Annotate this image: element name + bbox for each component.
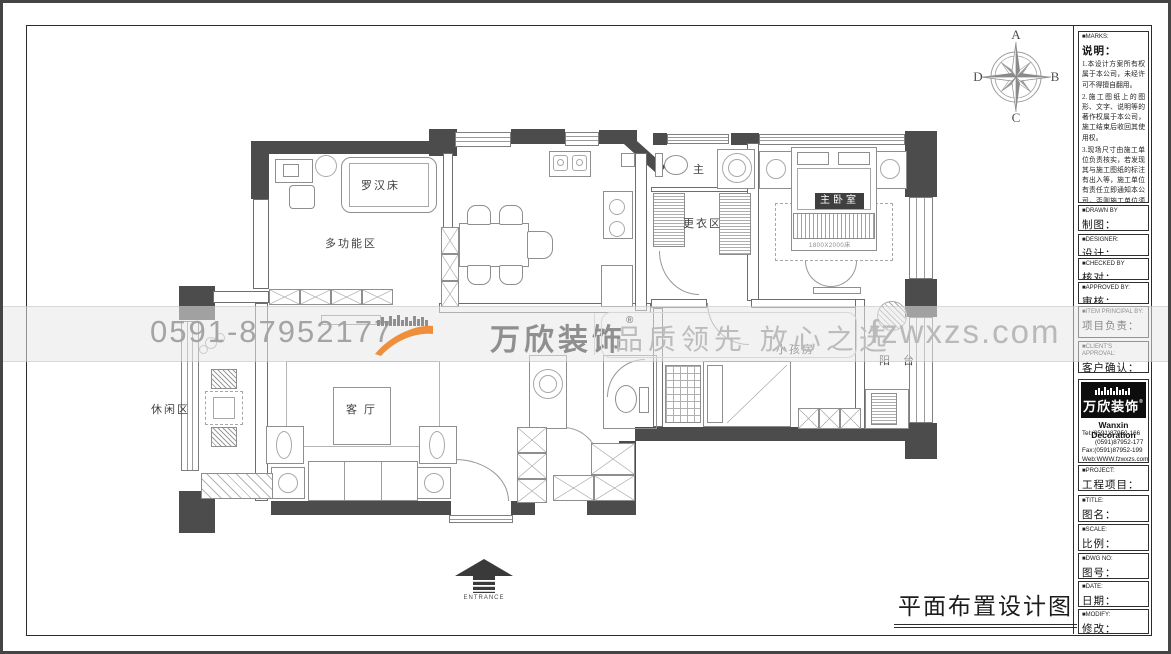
bath-cabinet xyxy=(517,453,547,479)
watermark-separator xyxy=(594,313,595,355)
storage-cabinet xyxy=(441,227,459,254)
watermark-banner: 0591-87952177 万欣装饰® 品质领先 放心之选 fzwxzs.com xyxy=(3,306,1171,362)
label-master-bedroom: 主卧室 xyxy=(815,193,864,209)
storage-cabinet xyxy=(300,289,331,305)
wall-segment xyxy=(587,501,636,515)
kids-wardrobe xyxy=(665,365,701,423)
door-arc xyxy=(659,251,699,295)
wall-segment xyxy=(511,129,565,144)
storage-cabinet xyxy=(441,254,459,281)
bath-cabinet xyxy=(517,479,547,503)
dining-chair xyxy=(527,231,553,259)
label-living: 客 厅 xyxy=(346,404,377,416)
leisure-table-inner xyxy=(213,397,235,419)
armchair-cushion xyxy=(276,431,292,459)
shoe-cabinet xyxy=(594,475,635,501)
door-arc xyxy=(805,261,857,287)
wardrobe xyxy=(653,193,685,247)
toilet-bowl xyxy=(615,385,637,413)
drawing-title: 平面布置设计图 xyxy=(894,587,1077,628)
ceiling-fan-symbol xyxy=(315,155,337,177)
wall-segment xyxy=(905,131,937,197)
wall-segment xyxy=(511,501,535,515)
kids-cabinet xyxy=(840,408,861,429)
washbasin-inner xyxy=(728,159,746,177)
wardrobe xyxy=(719,193,751,255)
sink-drain xyxy=(576,159,583,166)
kids-bed-pillow xyxy=(707,365,723,423)
watermark-website: fzwxzs.com xyxy=(870,313,1061,351)
label-luohan-bed: 罗汉床 xyxy=(361,180,400,192)
cabinet xyxy=(591,443,635,475)
window xyxy=(455,132,511,147)
dining-chair xyxy=(499,205,523,225)
nightstand-lamp xyxy=(880,159,900,179)
window xyxy=(909,197,933,279)
entrance-arrow-icon xyxy=(455,559,513,593)
side-table-top xyxy=(424,473,444,493)
balcony-cabinet-louver xyxy=(871,393,897,425)
sink-drain xyxy=(557,159,564,166)
dining-table xyxy=(459,223,529,267)
bed-bench xyxy=(813,287,861,294)
interior-wall xyxy=(443,153,453,229)
bed-runner xyxy=(793,213,875,239)
window xyxy=(667,134,729,144)
label-multi-function: 多功能区 xyxy=(325,238,377,250)
entrance-step xyxy=(449,515,513,523)
stove-burner xyxy=(609,221,625,237)
storage-cabinet xyxy=(362,289,393,305)
sofa-seat-divider xyxy=(344,462,345,500)
desk-item xyxy=(283,164,299,177)
low-cabinet xyxy=(201,473,273,499)
leisure-chair xyxy=(211,369,237,389)
label-entrance: ENTRANCE xyxy=(455,595,513,601)
kitchen-cabinet xyxy=(601,265,633,307)
leisure-chair xyxy=(211,427,237,447)
watermark-slogan: 品质领先 放心之选 xyxy=(615,318,892,358)
watermark-phone: 0591-87952177 xyxy=(150,314,393,350)
wall-segment xyxy=(271,501,451,515)
drawing-sheet: A B C D xyxy=(0,0,1171,654)
window xyxy=(759,134,905,145)
side-table-top xyxy=(278,473,298,493)
kids-bed-blanket-fold xyxy=(727,365,787,423)
nightstand-lamp xyxy=(766,159,786,179)
chair xyxy=(289,185,315,209)
kids-cabinet xyxy=(819,408,840,429)
toilet-tank xyxy=(655,153,663,177)
label-dressing: 更衣区 xyxy=(683,218,722,230)
toilet-bowl xyxy=(664,155,688,175)
dining-chair xyxy=(467,265,491,285)
interior-wall xyxy=(635,153,647,311)
wall-segment xyxy=(635,427,909,441)
sofa xyxy=(308,461,418,501)
storage-cabinet xyxy=(441,281,459,307)
interior-wall xyxy=(213,291,269,303)
wall-segment xyxy=(265,141,431,154)
label-leisure: 休闲区 xyxy=(151,404,190,416)
label-bed-size: 1800X2000床 xyxy=(809,243,851,250)
storage-cabinet xyxy=(269,289,300,305)
dining-chair xyxy=(499,265,523,285)
watermark-logo-icon xyxy=(373,312,485,356)
washbasin-inner xyxy=(539,375,557,393)
wall-segment xyxy=(905,423,937,459)
window xyxy=(565,132,599,146)
shoe-cabinet xyxy=(553,475,594,501)
interior-wall xyxy=(253,199,269,289)
kids-cabinet xyxy=(798,408,819,429)
bed-pillow xyxy=(838,152,870,165)
sofa-seat-divider xyxy=(381,462,382,500)
door-arc xyxy=(455,459,509,501)
wall-segment xyxy=(429,129,457,156)
toilet-tank xyxy=(639,387,649,413)
wall-segment xyxy=(653,133,667,145)
armchair-cushion xyxy=(429,431,445,459)
bath-cabinet xyxy=(517,427,547,453)
bed-pillow xyxy=(797,152,829,165)
storage-cabinet xyxy=(331,289,362,305)
stove-burner xyxy=(609,199,625,215)
dining-chair xyxy=(467,205,491,225)
kitchen-fixture xyxy=(621,153,635,167)
